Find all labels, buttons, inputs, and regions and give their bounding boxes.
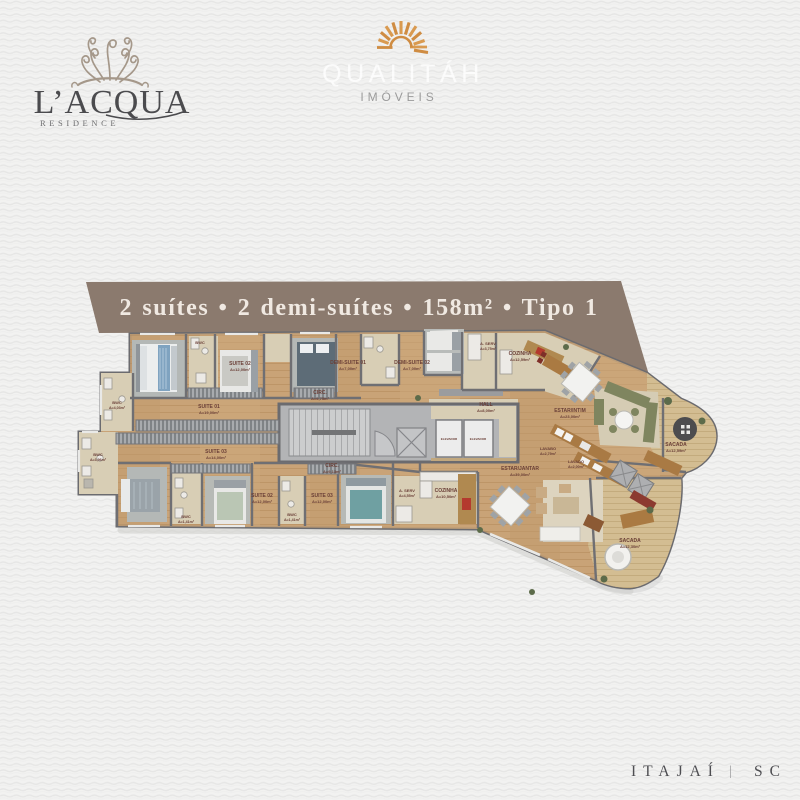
svg-text:A=12,00m²: A=12,00m² <box>312 499 333 504</box>
svg-text:LAVABO: LAVABO <box>540 446 556 451</box>
svg-text:SC: SC <box>754 763 787 780</box>
svg-text:2 suítes • 2 demi-suítes • 158: 2 suítes • 2 demi-suítes • 158m² • Tipo … <box>120 295 599 321</box>
svg-text:A=9,75m²: A=9,75m² <box>311 396 330 401</box>
svg-text:RESIDENCE: RESIDENCE <box>40 118 119 128</box>
svg-text:BWC: BWC <box>112 400 122 405</box>
svg-text:A=7,00m²: A=7,00m² <box>403 366 422 371</box>
svg-text:ELEVADOR: ELEVADOR <box>470 437 487 441</box>
svg-text:A=10,50m²: A=10,50m² <box>436 494 457 499</box>
svg-text:ITAJAÍ: ITAJAÍ <box>631 763 720 780</box>
svg-text:A=8,00m²: A=8,00m² <box>477 408 496 413</box>
svg-text:A=12,00m²: A=12,00m² <box>252 499 273 504</box>
svg-text:IMÓVEIS: IMÓVEIS <box>360 89 437 104</box>
svg-text:QUALITÁH: QUALITÁH <box>322 59 484 88</box>
svg-text:A=9,13m²: A=9,13m² <box>323 469 342 474</box>
svg-text:A. SERV: A. SERV <box>399 488 415 493</box>
svg-text:A=19,00m²: A=19,00m² <box>199 410 220 415</box>
svg-text:LAVADO: LAVADO <box>568 459 584 464</box>
svg-text:BWC: BWC <box>181 514 191 519</box>
svg-text:A=23,00m²: A=23,00m² <box>560 414 581 419</box>
svg-text:A=39,00m²: A=39,00m² <box>510 472 531 477</box>
svg-text:A=12,59m²: A=12,59m² <box>510 357 531 362</box>
svg-text:A. SERV: A. SERV <box>480 341 496 346</box>
svg-text:A=4,03m²: A=4,03m² <box>109 406 126 410</box>
svg-text:BWC: BWC <box>287 512 297 517</box>
svg-text:BWC: BWC <box>93 452 103 457</box>
svg-text:BWC: BWC <box>195 340 205 345</box>
svg-text:A=2,79m²: A=2,79m² <box>540 452 557 456</box>
svg-text:A=12,59m²: A=12,59m² <box>666 448 687 453</box>
svg-text:A=2,00m²: A=2,00m² <box>568 465 585 469</box>
svg-text:A=14,00m²: A=14,00m² <box>206 455 227 460</box>
svg-text:L’ACQUA: L’ACQUA <box>34 84 191 121</box>
svg-text:A=12,00m²: A=12,00m² <box>230 367 251 372</box>
svg-text:ELEVADOR: ELEVADOR <box>441 437 458 441</box>
svg-text:A=12,30m²: A=12,30m² <box>620 544 641 549</box>
svg-text:A=1,41m²: A=1,41m² <box>178 520 195 524</box>
svg-text:A=4,55m²: A=4,55m² <box>399 494 416 498</box>
svg-text:A=3,96m²: A=3,96m² <box>90 458 107 462</box>
svg-text:A=1,41m²: A=1,41m² <box>284 518 301 522</box>
svg-text:A=3,75m²: A=3,75m² <box>480 347 497 351</box>
svg-text:A=7,00m²: A=7,00m² <box>339 366 358 371</box>
svg-text:|: | <box>729 764 732 779</box>
